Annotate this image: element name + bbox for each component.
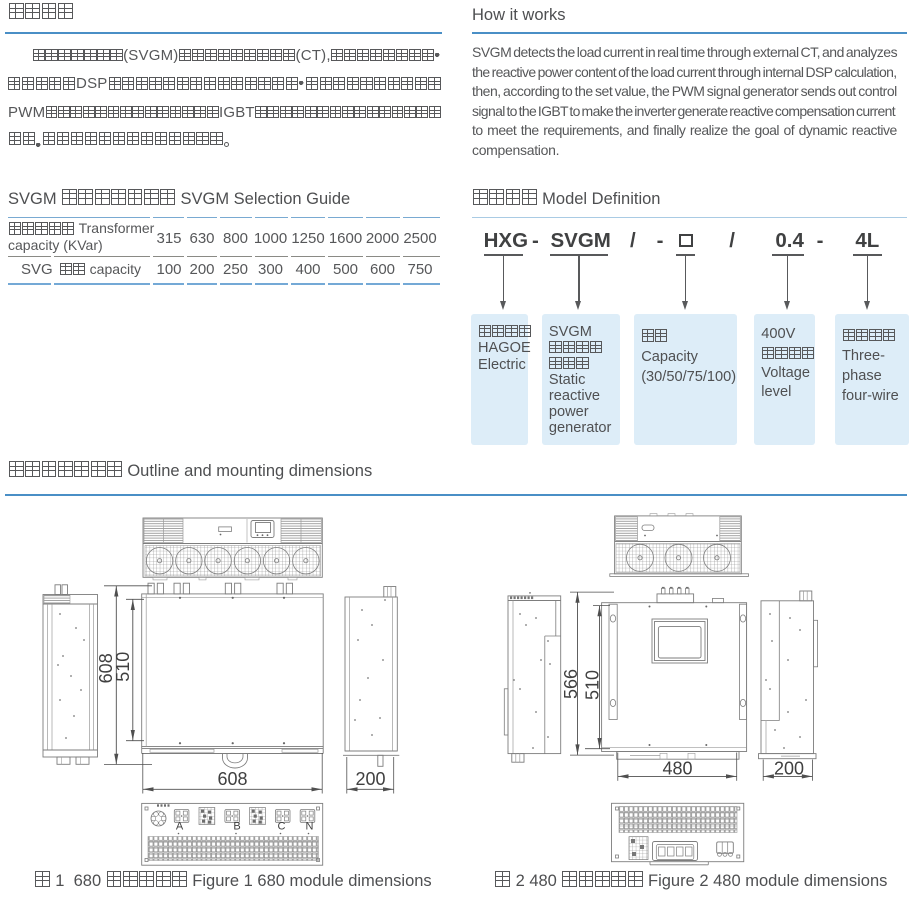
svg-text:566: 566: [561, 669, 581, 699]
svg-text:200: 200: [355, 769, 385, 789]
svg-text:B: B: [233, 821, 240, 833]
svg-text:608: 608: [217, 769, 247, 789]
svg-text:200: 200: [774, 759, 804, 779]
svg-text:N: N: [306, 821, 314, 833]
svg-text:480: 480: [662, 759, 692, 779]
svg-text:510: 510: [113, 652, 133, 682]
svg-text:C: C: [278, 821, 286, 833]
svg-text:510: 510: [582, 670, 602, 700]
svg-text:A: A: [176, 821, 184, 833]
